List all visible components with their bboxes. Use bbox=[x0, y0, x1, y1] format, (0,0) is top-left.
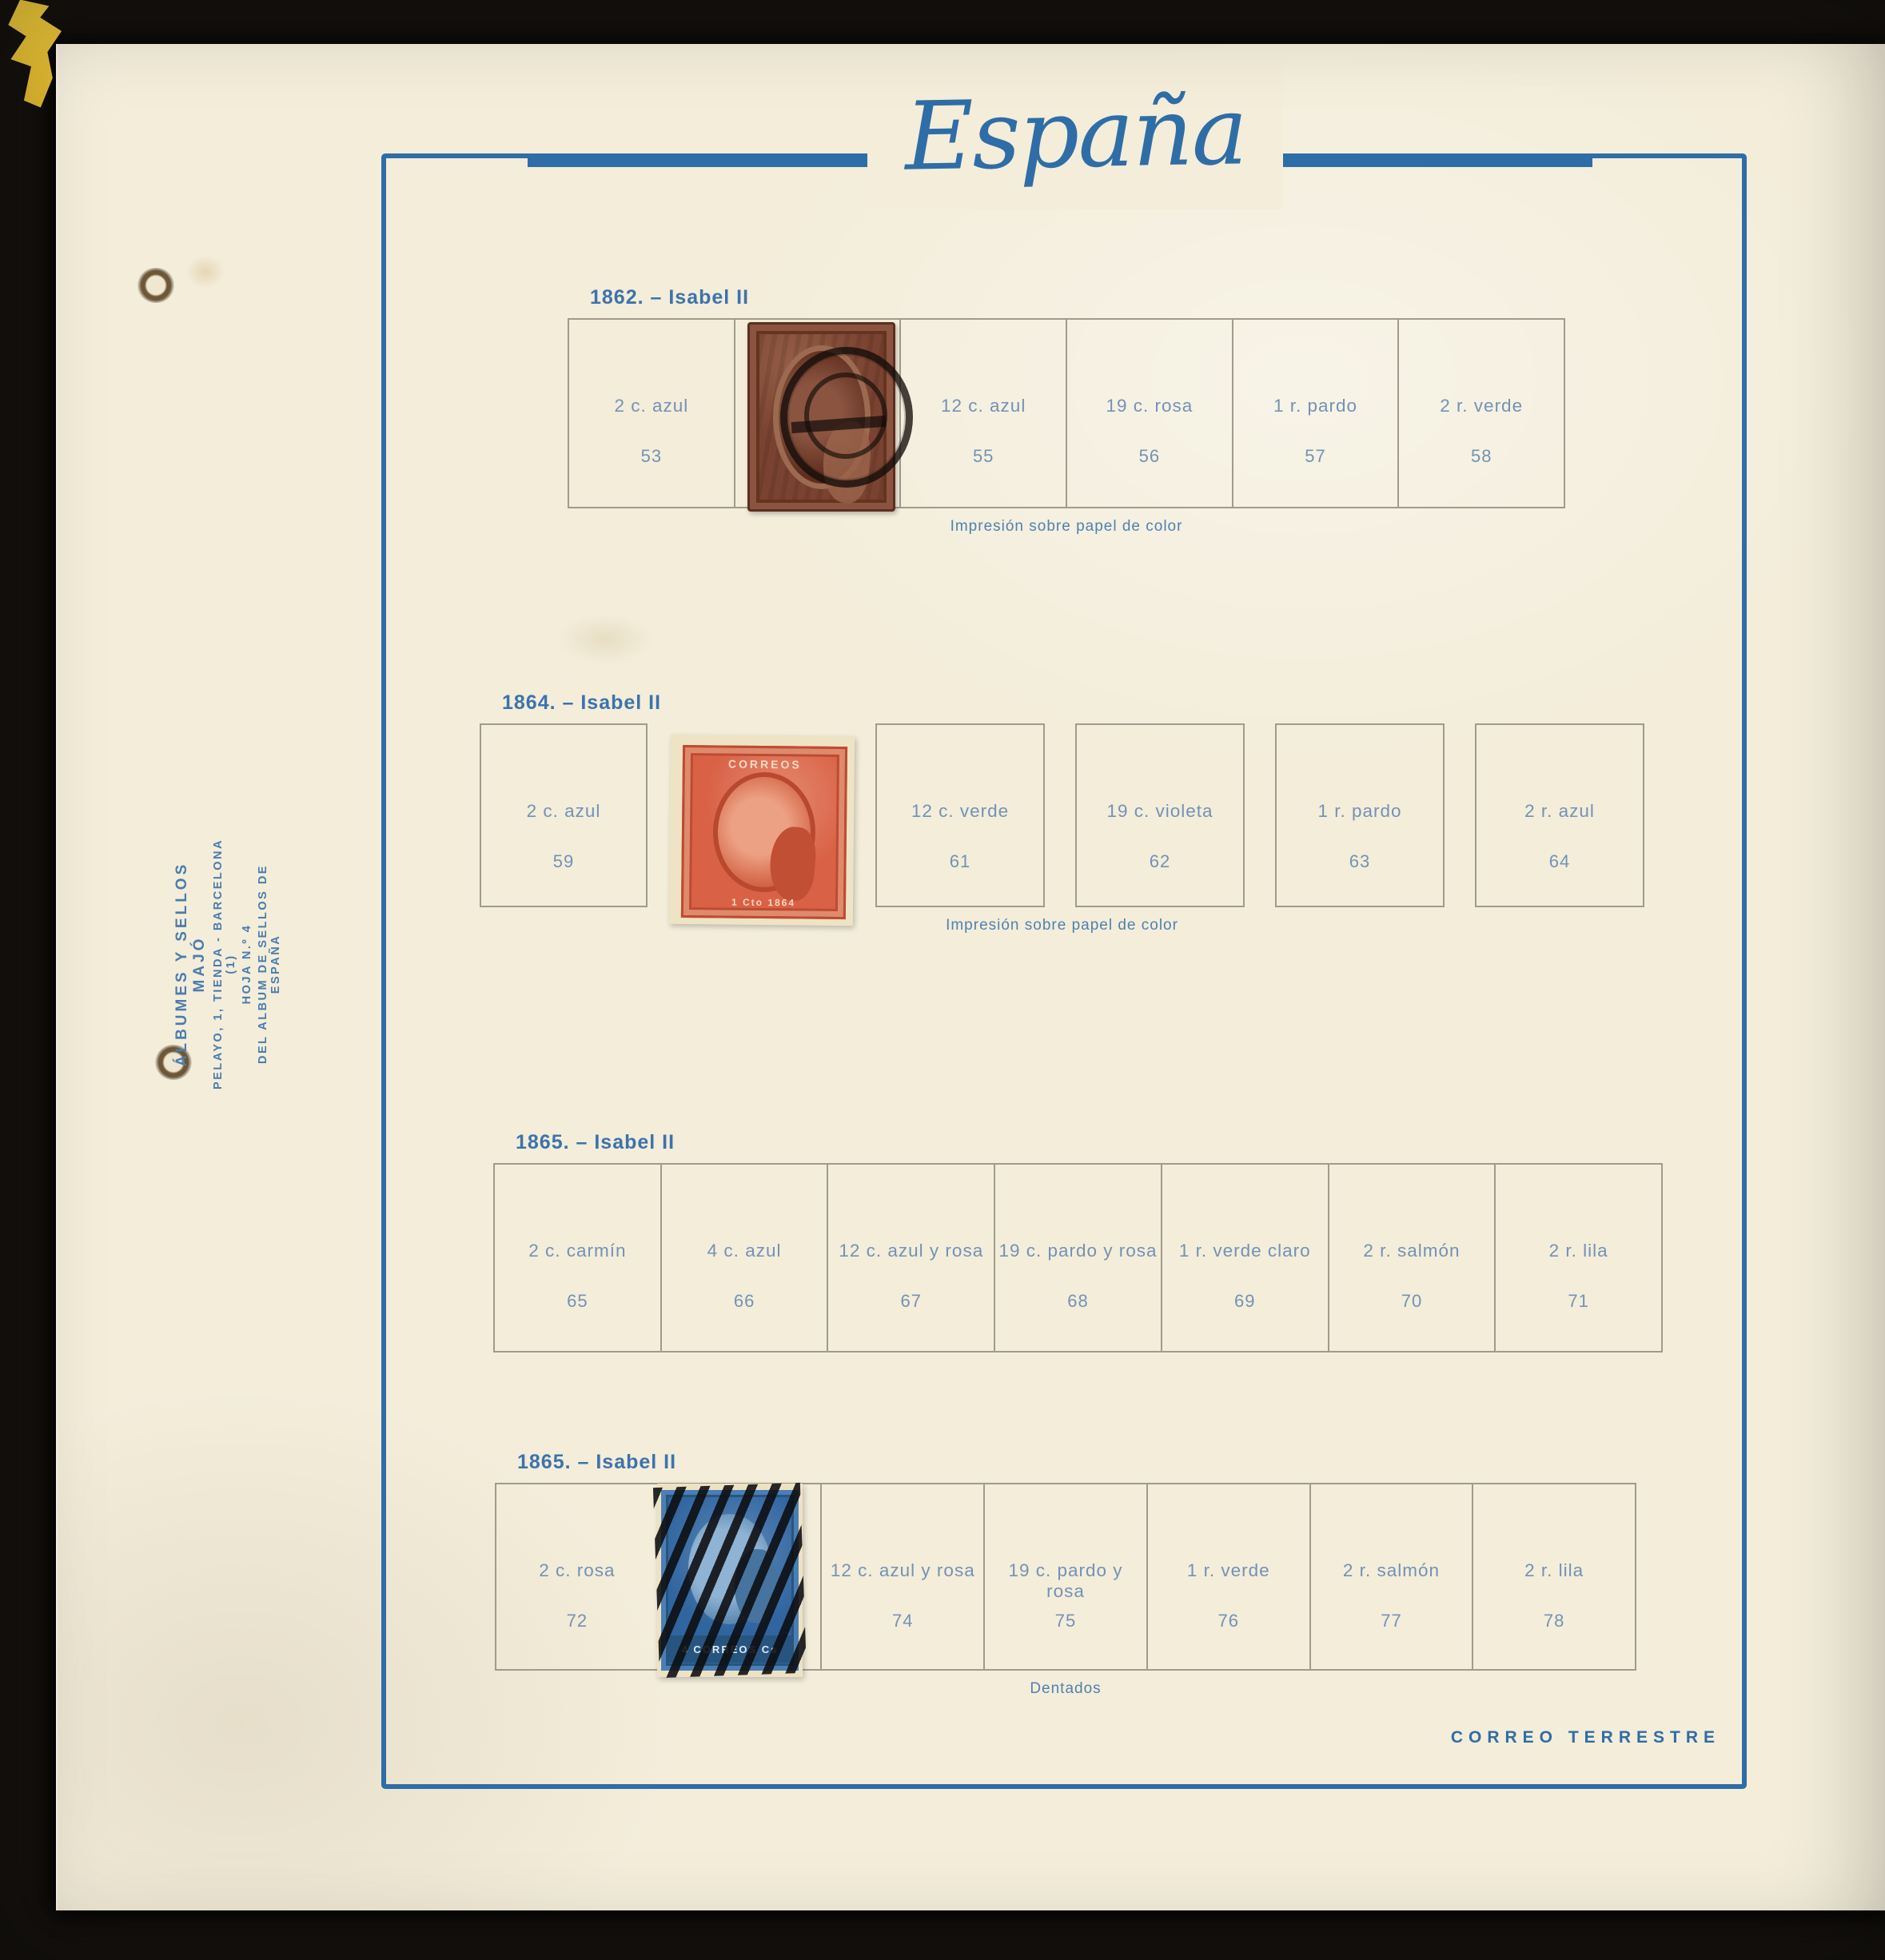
catalog-number: 56 bbox=[1067, 446, 1232, 467]
section-caption: Impresión sobre papel de color bbox=[480, 917, 1644, 934]
page-title: España bbox=[903, 75, 1246, 191]
stamp-space-label: 2 c. azul bbox=[484, 801, 643, 822]
stamp-space-label: 12 c. verde bbox=[880, 801, 1040, 822]
stamp-space: 12 c. azul y rosa 74 bbox=[820, 1484, 983, 1669]
stamp-inscription-top: CORREOS bbox=[685, 757, 845, 771]
catalog-number: 68 bbox=[995, 1291, 1161, 1312]
stamp-hinge-backing: 4 CORREOS Cs bbox=[657, 1484, 803, 1677]
catalog-number: 53 bbox=[569, 446, 734, 467]
stamp-1865-blue: 4 CORREOS Cs bbox=[661, 1490, 799, 1671]
stamp-space-label: 1 r. verde claro bbox=[1166, 1241, 1325, 1261]
stamp-row: 2 c. azul 53 12 c. azul 55 19 c. rosa 56… bbox=[568, 318, 1565, 508]
section-1864: 1864. – Isabel II 2 c. azul 59 12 c. ver… bbox=[480, 723, 1644, 907]
stamp-space-label: 19 c. rosa bbox=[1070, 396, 1229, 416]
stamp-space: 12 c. verde 61 bbox=[875, 723, 1045, 907]
title-rule-left bbox=[528, 157, 887, 167]
stamp-space-label: 12 c. azul y rosa bbox=[831, 1241, 990, 1261]
catalog-number: 78 bbox=[1473, 1611, 1635, 1631]
catalog-number: 76 bbox=[1148, 1611, 1309, 1631]
stamp-space-label: 19 c. violeta bbox=[1080, 801, 1240, 822]
stamp-space-label: 2 c. azul bbox=[572, 396, 731, 416]
section-year-header: 1865. – Isabel II bbox=[517, 1451, 676, 1474]
stamp-space: 1 r. verde 76 bbox=[1146, 1484, 1309, 1669]
stamp-space: 12 c. azul 55 bbox=[899, 320, 1066, 507]
stamp-space: 2 r. lila 71 bbox=[1494, 1165, 1661, 1351]
stamp-space: 2 r. verde 58 bbox=[1397, 320, 1564, 507]
punch-hole bbox=[137, 268, 174, 303]
footer-label: CORREO TERRESTRE bbox=[1311, 1728, 1720, 1747]
sheet-number: HOJA N.º 4 bbox=[241, 832, 253, 1096]
section-caption: Impresión sobre papel de color bbox=[568, 518, 1565, 536]
catalog-number: 74 bbox=[822, 1611, 983, 1631]
stamp-hinge-backing: CORREOS 1 Cto 1864 bbox=[669, 735, 855, 926]
album-name: DEL ALBUM DE SELLOS DE ESPAÑA bbox=[257, 832, 282, 1096]
isabel-profile bbox=[767, 825, 818, 902]
stamp-space: 2 r. salmón 70 bbox=[1328, 1165, 1495, 1351]
catalog-number: 72 bbox=[496, 1611, 658, 1631]
catalog-number: 63 bbox=[1277, 851, 1443, 872]
yellow-paper-remnant bbox=[0, 0, 62, 108]
catalog-number: 65 bbox=[495, 1291, 660, 1312]
stamp-space-label: 12 c. azul y rosa bbox=[825, 1560, 980, 1581]
stamp-space-label: 2 c. carmín bbox=[498, 1241, 657, 1261]
catalog-number: 57 bbox=[1233, 446, 1398, 467]
stamp-space: 2 c. azul 53 bbox=[569, 320, 734, 507]
stamp-space: 2 c. carmín 65 bbox=[495, 1165, 660, 1351]
stamp-space-label: 1 r. verde bbox=[1151, 1560, 1306, 1581]
stamp-space: 12 c. azul y rosa 67 bbox=[827, 1165, 994, 1351]
stamp-space: 4 c. azul 66 bbox=[660, 1165, 827, 1351]
stamp-space-label: 2 r. lila bbox=[1499, 1241, 1658, 1261]
stamp-space: 19 c. rosa 56 bbox=[1066, 320, 1232, 507]
stamp-inscription-bottom: 1 Cto 1864 bbox=[683, 896, 843, 909]
catalog-number: 59 bbox=[481, 851, 646, 872]
stamp-space: 2 c. rosa 72 bbox=[496, 1484, 658, 1669]
section-caption: Dentados bbox=[495, 1680, 1636, 1698]
stamp-space-label: 2 r. salmón bbox=[1314, 1560, 1469, 1581]
stamp-space: 19 c. violeta 62 bbox=[1075, 723, 1245, 907]
stamp-space-label: 12 c. azul bbox=[904, 396, 1062, 416]
stamp-row: 2 c. azul 59 12 c. verde 61 19 c. violet… bbox=[480, 723, 1644, 907]
stamp-space: 1 r. pardo 57 bbox=[1232, 320, 1398, 507]
stamp-space-label: 1 r. pardo bbox=[1237, 396, 1395, 416]
catalog-number: 58 bbox=[1399, 446, 1564, 467]
stamp-space: 2 c. azul 59 bbox=[480, 723, 648, 907]
stamp-space-label: 19 c. pardo y rosa bbox=[988, 1560, 1143, 1602]
stamp-space-label: 2 r. salmón bbox=[1333, 1241, 1492, 1261]
section-1865-sin-dentar: 1865. – Isabel II 2 c. carmín 65 4 c. az… bbox=[493, 1163, 1663, 1352]
catalog-number: 67 bbox=[828, 1291, 994, 1312]
publisher-imprint: ÁLBUMES Y SELLOS MAJÓ PELAYO, 1, TIENDA … bbox=[184, 832, 272, 1096]
section-year-header: 1864. – Isabel II bbox=[502, 691, 661, 715]
paper-smudge bbox=[177, 248, 233, 296]
stamp-space: 19 c. pardo y rosa 68 bbox=[994, 1165, 1161, 1351]
stamp-1864-red: CORREOS 1 Cto 1864 bbox=[681, 745, 847, 919]
stamp-space-label: 4 c. azul bbox=[665, 1241, 824, 1261]
stamp-space: 2 r. lila 78 bbox=[1472, 1484, 1635, 1669]
catalog-number: 66 bbox=[662, 1291, 827, 1312]
catalog-number: 69 bbox=[1162, 1291, 1328, 1312]
stamp-space-label: 2 r. verde bbox=[1402, 396, 1560, 416]
catalog-number: 64 bbox=[1477, 851, 1643, 872]
catalog-number: 62 bbox=[1077, 851, 1243, 872]
stamp-space-label: 2 r. lila bbox=[1477, 1560, 1632, 1581]
page-title-block: España bbox=[867, 58, 1283, 209]
catalog-number: 70 bbox=[1329, 1291, 1495, 1312]
stamp-oval-portrait bbox=[712, 771, 816, 892]
section-year-header: 1865. – Isabel II bbox=[516, 1131, 675, 1154]
section-year-header: 1862. – Isabel II bbox=[590, 286, 749, 309]
stamp-space: 2 r. azul 64 bbox=[1475, 723, 1644, 907]
catalog-number: 55 bbox=[901, 446, 1066, 467]
stamp-space: 2 r. salmón 77 bbox=[1309, 1484, 1473, 1669]
stamp-space-label: 2 c. rosa bbox=[500, 1560, 655, 1581]
catalog-number: 71 bbox=[1496, 1291, 1661, 1312]
stamp-1862-brown bbox=[747, 322, 895, 512]
stamp-space-label: 1 r. pardo bbox=[1280, 801, 1440, 822]
section-1862: 1862. – Isabel II 2 c. azul 53 12 c. azu… bbox=[568, 318, 1565, 508]
stamp-space-label: 2 r. azul bbox=[1480, 801, 1640, 822]
stamp-row: 2 c. carmín 65 4 c. azul 66 12 c. azul y… bbox=[493, 1163, 1663, 1352]
stamp-space: 19 c. pardo y rosa 75 bbox=[983, 1484, 1146, 1669]
title-rule-right bbox=[1244, 157, 1592, 167]
catalog-number: 77 bbox=[1311, 1611, 1473, 1631]
catalog-number: 75 bbox=[985, 1611, 1146, 1631]
stamp-space: 1 r. verde claro 69 bbox=[1161, 1165, 1328, 1351]
grill-cancel bbox=[653, 1483, 807, 1678]
publisher-address: PELAYO, 1, TIENDA - BARCELONA (1) bbox=[212, 832, 237, 1096]
publisher-name: ÁLBUMES Y SELLOS MAJÓ bbox=[173, 832, 209, 1096]
stamp-space: 1 r. pardo 63 bbox=[1275, 723, 1445, 907]
catalog-number: 61 bbox=[877, 851, 1043, 872]
stamp-space-label: 19 c. pardo y rosa bbox=[998, 1241, 1158, 1261]
